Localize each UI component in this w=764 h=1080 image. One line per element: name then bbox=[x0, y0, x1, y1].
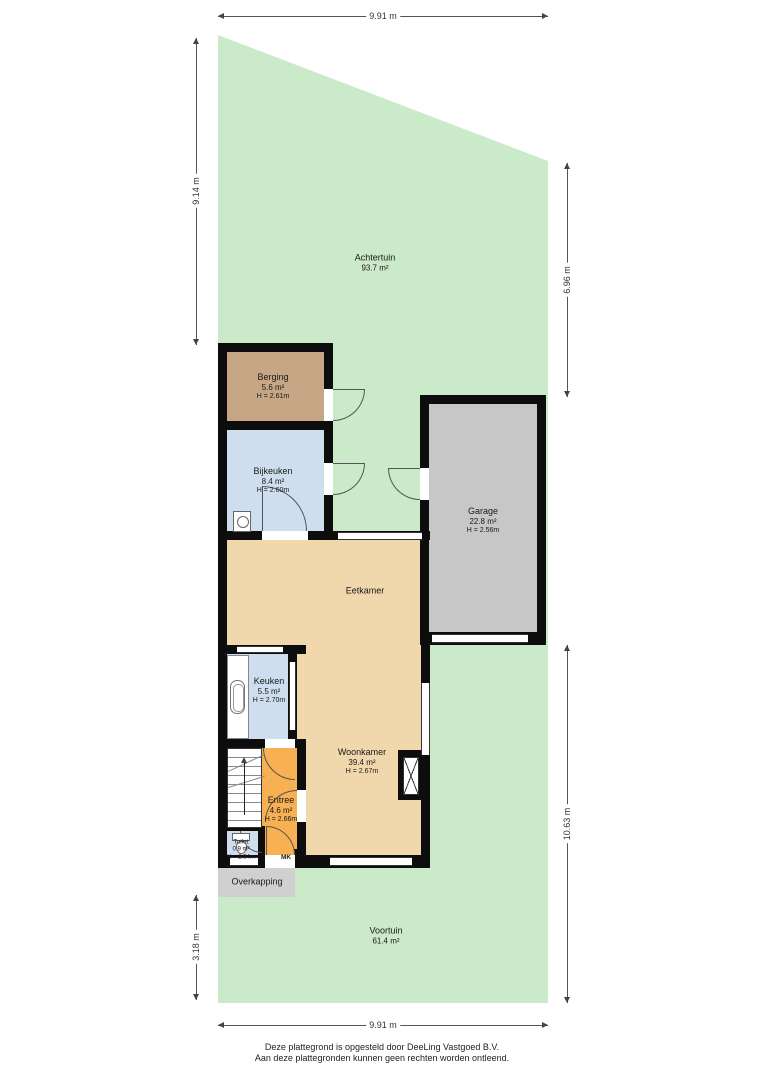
room-label-voortuin: Voortuin 61.4 m² bbox=[369, 925, 402, 946]
dimension-label-left-upper: 9.14 m bbox=[191, 174, 201, 208]
room-area: 93.7 m² bbox=[355, 264, 396, 274]
room-area: 61.4 m² bbox=[369, 937, 402, 947]
dimension-arrow bbox=[564, 163, 570, 169]
window-woonkamer-front bbox=[330, 857, 412, 866]
room-label-overkapping: Overkapping bbox=[231, 876, 282, 887]
door-opening-entree-woonkamer bbox=[297, 790, 306, 822]
room-label-eetkamer: Eetkamer bbox=[346, 585, 385, 596]
wall-berging-bijkeuken-right bbox=[324, 343, 333, 540]
door-opening-bijkeuken-eetkamer bbox=[262, 531, 308, 540]
room-label-berging: Berging 5.6 m² H = 2.61m bbox=[257, 372, 290, 402]
room-height: H = 2.61m bbox=[257, 393, 290, 402]
room-label-garage: Garage 22.8 m² H = 2.56m bbox=[467, 506, 500, 536]
wall-berging-top bbox=[218, 343, 333, 352]
floorplan-canvas: Achtertuin 93.7 m² Berging 5.6 m² H = 2.… bbox=[0, 0, 764, 1080]
dimension-arrow bbox=[542, 13, 548, 19]
room-area: 5.5 m² bbox=[253, 687, 286, 697]
dimension-arrow bbox=[564, 997, 570, 1003]
dimension-arrow bbox=[193, 994, 199, 1000]
door-opening-berging bbox=[324, 389, 333, 421]
room-label-mk: MK bbox=[281, 854, 291, 861]
washer-fixture bbox=[233, 511, 251, 532]
room-name: Entree bbox=[265, 795, 298, 806]
room-area: 5.6 m² bbox=[257, 383, 290, 393]
stair-winder-line bbox=[228, 776, 265, 788]
staircase bbox=[227, 748, 262, 828]
room-label-entree: Entree 4.6 m² H = 2.66m bbox=[265, 795, 298, 825]
window-garage bbox=[432, 634, 528, 643]
dimension-label-right-lower: 10.63 m bbox=[562, 805, 572, 844]
opening-keuken-woonkamer bbox=[289, 662, 296, 730]
stair-direction-line bbox=[244, 763, 245, 815]
dimension-arrow bbox=[193, 339, 199, 345]
room-name: Garage bbox=[467, 506, 500, 517]
dimension-arrow bbox=[564, 391, 570, 397]
room-area: 39.4 m² bbox=[338, 758, 386, 768]
room-height: H = 2.67m bbox=[338, 768, 386, 777]
dimension-arrow bbox=[193, 895, 199, 901]
room-height: H = 2.60m bbox=[253, 487, 292, 496]
room-area: 22.8 m² bbox=[467, 517, 500, 527]
room-area: 8.4 m² bbox=[253, 477, 292, 487]
dimension-label-bottom: 9.91 m bbox=[366, 1020, 400, 1030]
dimension-arrow bbox=[218, 13, 224, 19]
opening-keuken-passthrough bbox=[237, 646, 283, 653]
door-opening-entree-top bbox=[265, 739, 295, 748]
dimension-label-right-upper: 6.96 m bbox=[562, 263, 572, 297]
room-label-keuken: Keuken 5.5 m² H = 2.70m bbox=[253, 676, 286, 706]
room-height: H = 2.66m bbox=[265, 816, 298, 825]
wall-garage-top bbox=[420, 395, 546, 404]
wall-berging-bijkeuken bbox=[218, 421, 333, 430]
footer-line1: Deze plattegrond is opgesteld door DeeLi… bbox=[0, 1042, 764, 1053]
wall-house-left bbox=[218, 343, 227, 868]
room-area: 0.9 m² bbox=[227, 847, 255, 855]
dimension-arrow bbox=[542, 1022, 548, 1028]
dimension-label-top: 9.91 m bbox=[366, 11, 400, 21]
room-height: H = 2.34m bbox=[227, 854, 255, 862]
room-name: Voortuin bbox=[369, 925, 402, 936]
wall-garage-left bbox=[420, 395, 429, 641]
washer-drum bbox=[237, 516, 249, 528]
room-height: H = 2.70m bbox=[253, 697, 286, 706]
room-label-toilet: Toilet 0.9 m² H = 2.34m bbox=[227, 838, 255, 861]
kitchen-sink bbox=[230, 680, 245, 714]
wall-garage-right bbox=[537, 395, 546, 645]
room-name: Eetkamer bbox=[346, 585, 385, 596]
chimney-hatch bbox=[403, 757, 419, 795]
door-leaf-garage bbox=[388, 468, 420, 469]
dimension-arrow bbox=[193, 38, 199, 44]
door-leaf-bijkeuken bbox=[333, 463, 365, 464]
kitchen-sink-basin bbox=[233, 684, 244, 712]
door-opening-garage bbox=[420, 468, 429, 500]
footer-line2: Aan deze plattegronden kunnen geen recht… bbox=[0, 1053, 764, 1064]
room-height: H = 2.56m bbox=[467, 527, 500, 536]
dimension-label-left-lower: 3.18 m bbox=[191, 930, 201, 964]
dimension-arrow bbox=[218, 1022, 224, 1028]
meter-cupboard-box bbox=[294, 849, 303, 860]
footer-disclaimer: Deze plattegrond is opgesteld door DeeLi… bbox=[0, 1042, 764, 1065]
room-eetkamer-floor bbox=[227, 540, 421, 645]
window-eetkamer bbox=[338, 532, 422, 540]
room-name: Overkapping bbox=[231, 876, 282, 887]
room-label-woonkamer: Woonkamer 39.4 m² H = 2.67m bbox=[338, 747, 386, 777]
dimension-arrow bbox=[564, 645, 570, 651]
door-opening-bijkeuken bbox=[324, 463, 333, 495]
room-name: Keuken bbox=[253, 676, 286, 687]
room-name: Berging bbox=[257, 372, 290, 383]
room-name: Achtertuin bbox=[355, 252, 396, 263]
room-name: Toilet bbox=[227, 838, 255, 846]
door-leaf-front-door bbox=[266, 826, 267, 855]
room-label-achtertuin: Achtertuin 93.7 m² bbox=[355, 252, 396, 273]
window-woonkamer-side bbox=[421, 683, 430, 755]
room-area: 4.6 m² bbox=[265, 806, 298, 816]
room-name: Bijkeuken bbox=[253, 466, 292, 477]
room-name: Woonkamer bbox=[338, 747, 386, 758]
door-leaf-berging bbox=[333, 389, 365, 390]
room-label-bijkeuken: Bijkeuken 8.4 m² H = 2.60m bbox=[253, 466, 292, 496]
stair-direction-arrow bbox=[241, 757, 247, 763]
